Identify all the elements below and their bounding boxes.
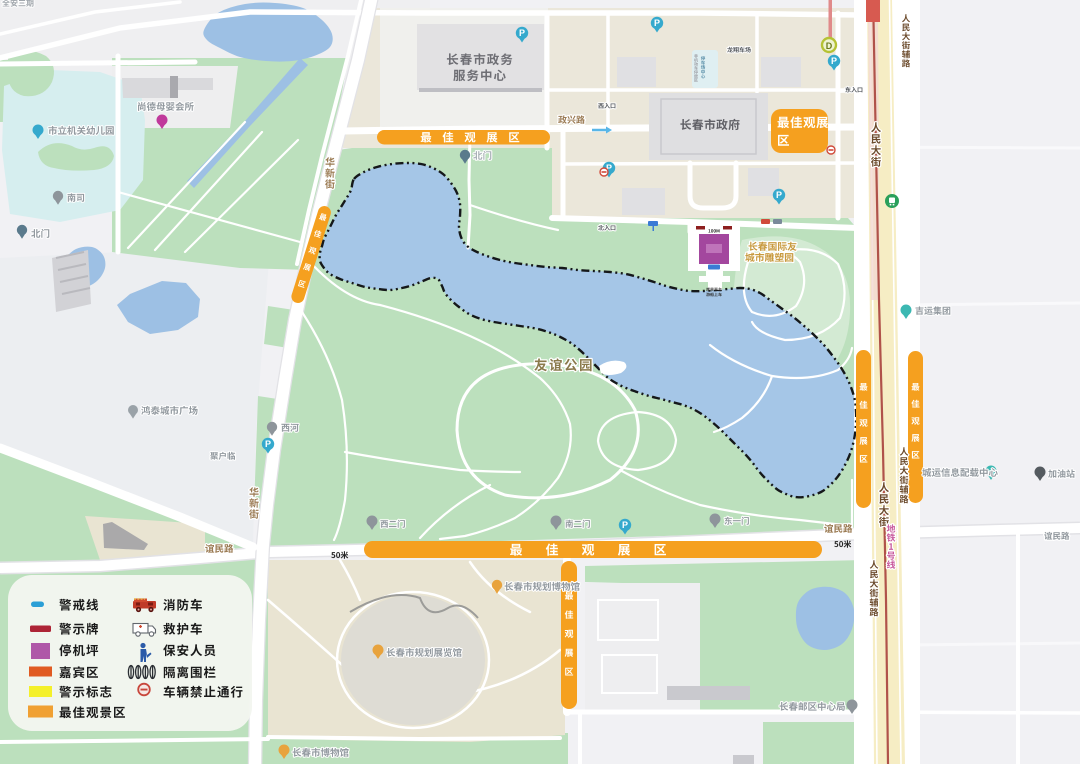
svg-text:P: P xyxy=(622,520,628,530)
svg-text:P: P xyxy=(519,28,525,38)
svg-text:D: D xyxy=(826,41,833,51)
svg-text:P: P xyxy=(265,439,271,449)
svg-text:P: P xyxy=(654,18,660,28)
svg-text:P: P xyxy=(776,190,782,200)
svg-text:P: P xyxy=(831,56,837,66)
